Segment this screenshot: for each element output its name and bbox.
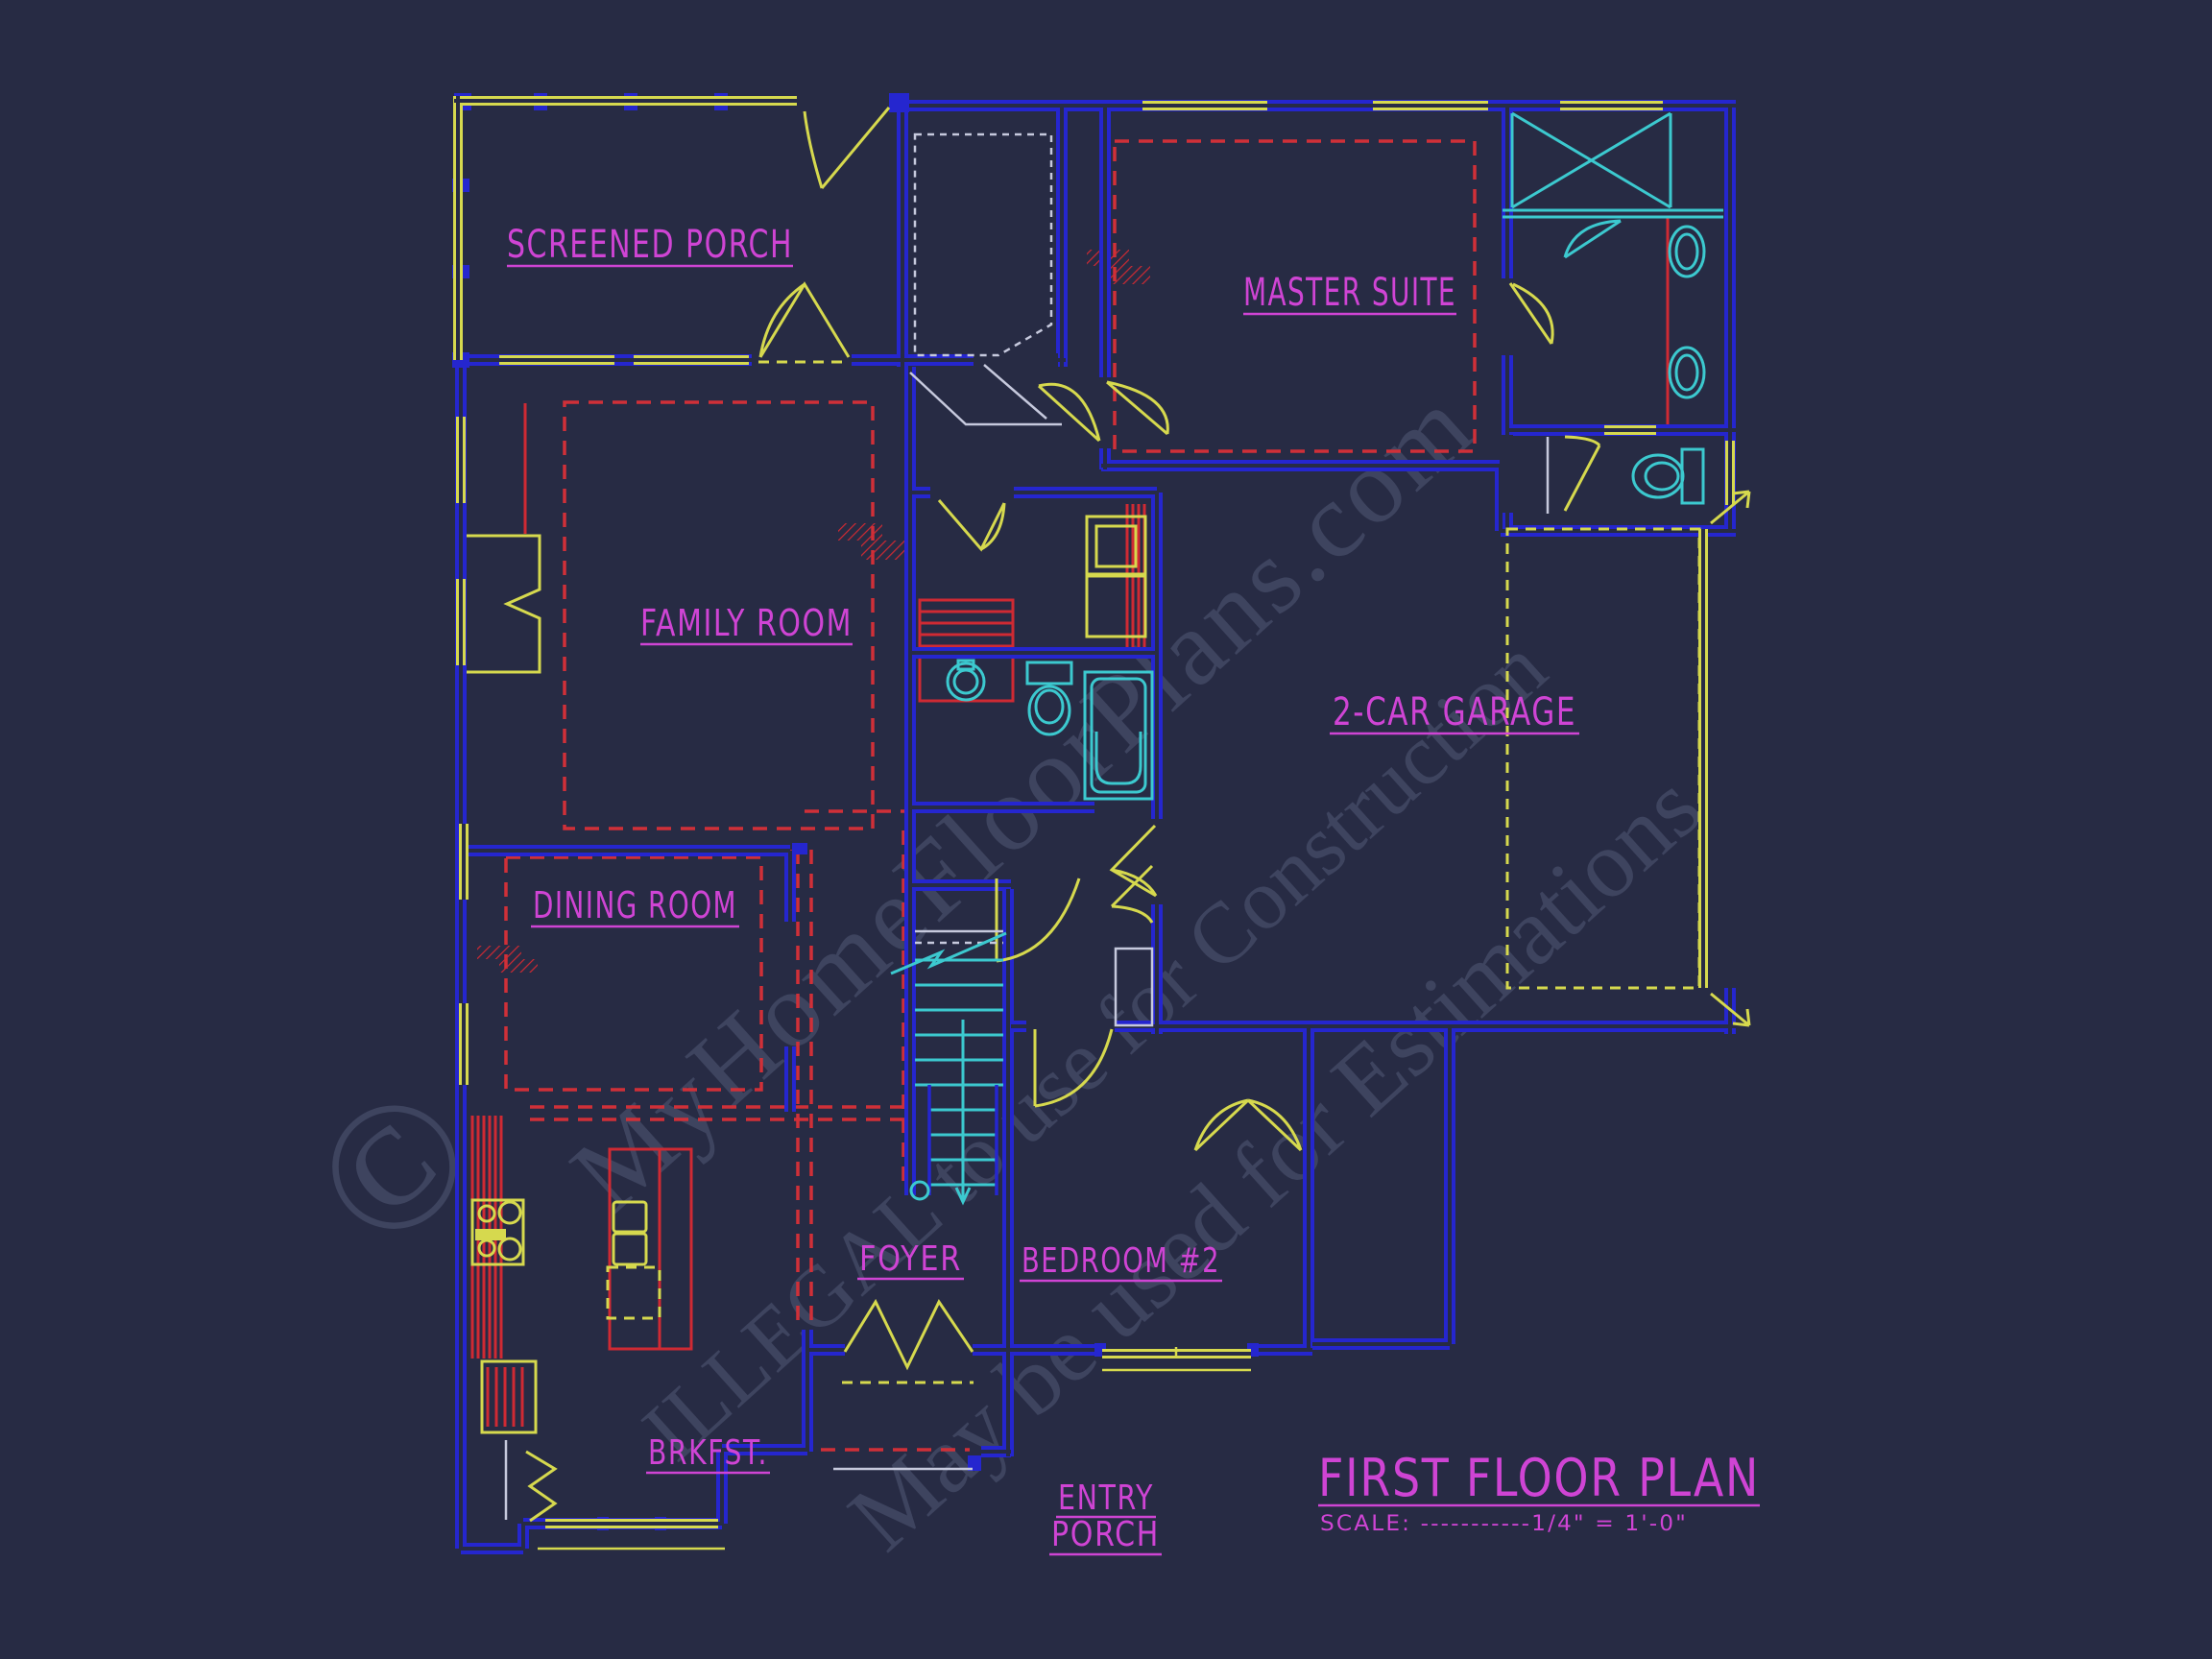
wall-hatch-symbol	[1087, 250, 1150, 284]
pantry-dashed-outline	[915, 134, 1051, 355]
watermark: © MyHomeFloorPlans.com ILLEGAL to use fo…	[275, 365, 1720, 1571]
kitchen-bifold-door	[526, 1452, 555, 1521]
base-cabinet-icon	[482, 1361, 536, 1432]
room-label-foyer: FOYER	[859, 1239, 962, 1279]
room-label-bedroom-2: BEDROOM #2	[1022, 1241, 1220, 1281]
drawing-title: FIRST FLOOR PLAN	[1318, 1448, 1760, 1508]
room-label-garage: 2-CAR GARAGE	[1333, 690, 1576, 734]
room-label-family-room: FAMILY ROOM	[640, 602, 853, 644]
range-stove-icon	[472, 1200, 523, 1264]
floor-plan-canvas: © MyHomeFloorPlans.com ILLEGAL to use fo…	[0, 0, 2212, 1659]
vanity-sink-icon	[1670, 348, 1704, 397]
island-dashed-cabinet	[608, 1267, 660, 1318]
wall-hatch-symbol	[838, 523, 909, 560]
first-floor-plan-drawing: © MyHomeFloorPlans.com ILLEGAL to use fo…	[0, 0, 2212, 1659]
master-bath-door	[1510, 283, 1552, 344]
pedestal-sink-icon	[948, 661, 984, 700]
room-label-dining-room: DINING ROOM	[533, 884, 737, 926]
fireplace-icon	[467, 536, 540, 672]
drawing-scale-note: SCALE: -----------1/4" = 1'-0"	[1320, 1512, 1688, 1536]
room-label-master-suite: MASTER SUITE	[1243, 271, 1456, 315]
room-label-breakfast: BRKFST.	[648, 1433, 768, 1473]
wall-hatch-symbol	[477, 946, 538, 973]
title-block: FIRST FLOOR PLAN SCALE: -----------1/4" …	[1318, 1448, 1760, 1536]
garage-door-arrows	[1711, 492, 1749, 1025]
hvac-vent-box	[920, 600, 1013, 646]
hall-door	[1039, 384, 1099, 441]
room-label-entry: ENTRY	[1058, 1479, 1154, 1518]
room-label-screened-porch: SCREENED PORCH	[507, 223, 793, 267]
mud-hall-door	[939, 500, 1004, 549]
toilet-icon	[1633, 449, 1703, 503]
toilet-room-door	[1565, 437, 1599, 511]
porch-top-door	[805, 108, 889, 188]
vanity-sink-icon	[1670, 227, 1704, 276]
master-suite-door	[1107, 382, 1167, 434]
porch-bottom-door	[760, 284, 849, 357]
room-label-porch: PORCH	[1051, 1515, 1160, 1554]
